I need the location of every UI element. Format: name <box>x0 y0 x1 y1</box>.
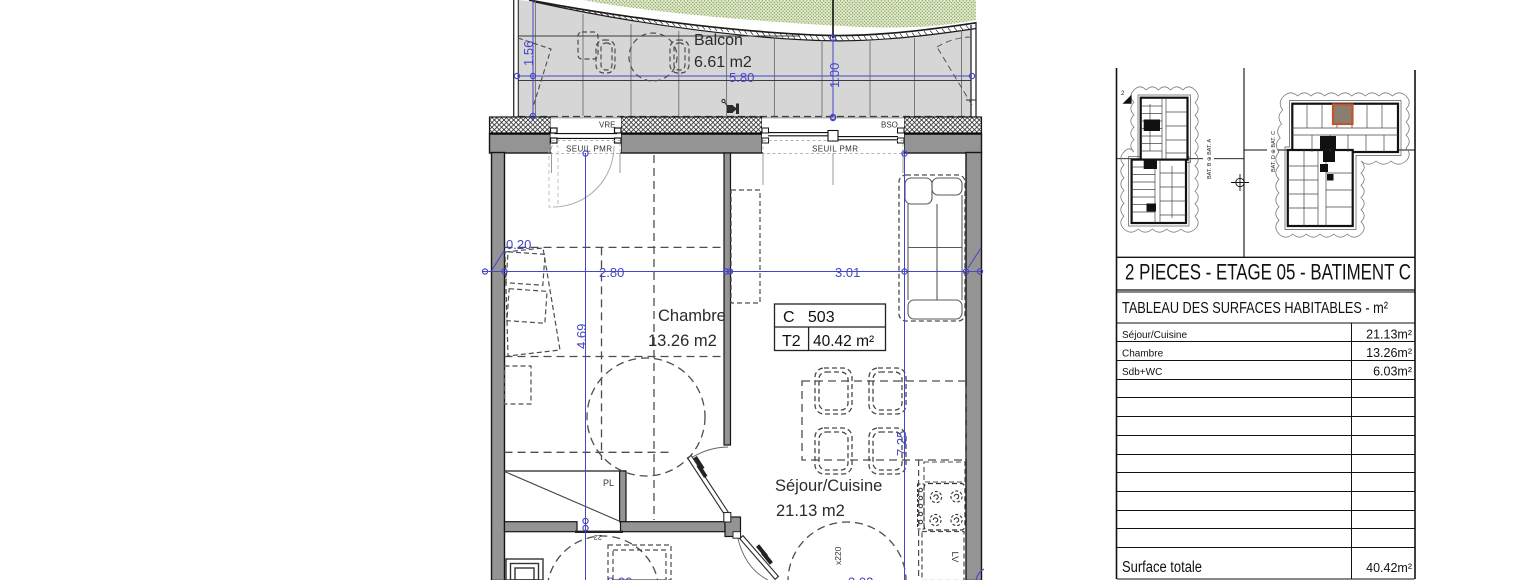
svg-text:1.00: 1.00 <box>827 63 842 88</box>
svg-text:SEUIL PMR: SEUIL PMR <box>566 145 612 154</box>
svg-text:Séjour/Cuisine: Séjour/Cuisine <box>1122 330 1187 341</box>
svg-text:Sdb+WC: Sdb+WC <box>1122 367 1162 378</box>
svg-text:21.13 m2: 21.13 m2 <box>776 502 845 520</box>
svg-text:2.80: 2.80 <box>599 265 624 280</box>
svg-text:22: 22 <box>594 533 602 542</box>
svg-text:7.25: 7.25 <box>894 431 909 456</box>
svg-text:LV: LV <box>949 552 960 564</box>
svg-text:x220: x220 <box>833 546 843 565</box>
svg-text:13.26 m2: 13.26 m2 <box>648 332 717 350</box>
svg-text:3.01: 3.01 <box>835 265 860 280</box>
svg-text:Séjour/Cuisine: Séjour/Cuisine <box>775 477 882 495</box>
svg-text:PL: PL <box>603 478 614 488</box>
svg-text:0.90: 0.90 <box>607 575 632 580</box>
svg-text:BAT. B ⊕ BAT. A: BAT. B ⊕ BAT. A <box>1207 139 1213 179</box>
svg-text:SEUIL PMR: SEUIL PMR <box>812 145 858 154</box>
svg-text:3.02: 3.02 <box>848 575 873 580</box>
svg-text:BAT. D ⊕ BAT. C: BAT. D ⊕ BAT. C <box>1271 131 1277 172</box>
svg-text:40.42 m²: 40.42 m² <box>813 333 874 350</box>
svg-text:6.03m²: 6.03m² <box>1373 365 1412 379</box>
svg-text:40.42m²: 40.42m² <box>1366 561 1412 575</box>
svg-text:4.69: 4.69 <box>574 324 589 349</box>
svg-text:6.61 m2: 6.61 m2 <box>694 54 752 71</box>
svg-text:5.80: 5.80 <box>729 70 754 85</box>
svg-text:2: 2 <box>1121 91 1125 97</box>
svg-text:1.56: 1.56 <box>521 41 536 66</box>
svg-text:Chambre: Chambre <box>1122 349 1164 360</box>
svg-text:BSO: BSO <box>881 121 898 130</box>
svg-text:Balcon: Balcon <box>694 32 743 49</box>
svg-text:TABLEAU DES SURFACES HABITABLE: TABLEAU DES SURFACES HABITABLES - m² <box>1122 300 1389 317</box>
svg-text:13.26m²: 13.26m² <box>1366 346 1412 360</box>
svg-text:Chambre: Chambre <box>658 307 726 325</box>
svg-text:T2: T2 <box>782 333 801 350</box>
svg-text:21.13m²: 21.13m² <box>1366 328 1412 342</box>
svg-text:0.20: 0.20 <box>506 237 531 252</box>
svg-text:VRE: VRE <box>599 121 615 130</box>
svg-text:C 503: C 503 <box>783 309 835 326</box>
svg-text:2 PIECES - ETAGE 05 - BATIMENT: 2 PIECES - ETAGE 05 - BATIMENT C <box>1125 260 1411 285</box>
svg-text:Surface totale: Surface totale <box>1122 559 1202 576</box>
